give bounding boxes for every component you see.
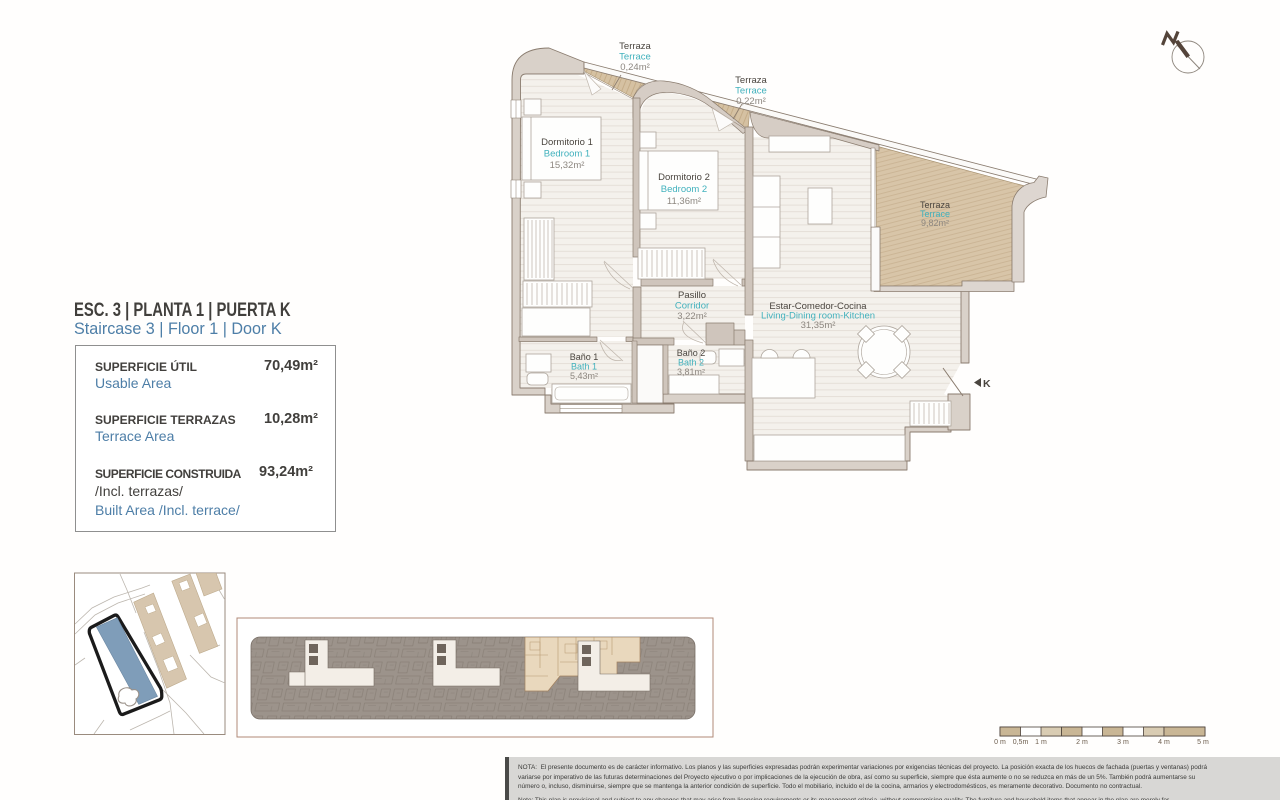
svg-text:3 m: 3 m (1117, 739, 1129, 746)
svg-text:4 m: 4 m (1158, 739, 1170, 746)
svg-text:0,22m²: 0,22m² (736, 96, 766, 107)
svg-text:Pasillo: Pasillo (678, 290, 706, 301)
svg-text:Bedroom 1: Bedroom 1 (544, 149, 590, 160)
svg-text:Terrace: Terrace (619, 52, 651, 63)
svg-text:9,82m²: 9,82m² (921, 218, 949, 228)
svg-text:3,81m²: 3,81m² (677, 367, 705, 377)
svg-text:Bedroom 2: Bedroom 2 (661, 184, 707, 195)
svg-text:K: K (983, 378, 991, 390)
svg-text:31,35m²: 31,35m² (801, 320, 836, 331)
svg-text:0,5m: 0,5m (1013, 739, 1029, 746)
svg-text:Bath 1: Bath 1 (571, 362, 597, 372)
svg-text:15,32m²: 15,32m² (550, 160, 585, 171)
svg-text:Terraza: Terraza (619, 41, 651, 52)
svg-text:Dormitorio 2: Dormitorio 2 (658, 172, 710, 183)
svg-text:Terraza: Terraza (735, 75, 767, 86)
svg-text:3,22m²: 3,22m² (677, 311, 707, 322)
svg-text:5 m: 5 m (1197, 739, 1209, 746)
svg-text:0 m: 0 m (994, 739, 1006, 746)
svg-text:2 m: 2 m (1076, 739, 1088, 746)
svg-text:5,43m²: 5,43m² (570, 371, 598, 381)
svg-text:Corridor: Corridor (675, 301, 709, 312)
svg-text:Bath 2: Bath 2 (678, 358, 704, 368)
svg-text:1 m: 1 m (1035, 739, 1047, 746)
svg-text:Baño 2: Baño 2 (677, 348, 706, 358)
svg-text:11,36m²: 11,36m² (667, 196, 701, 207)
svg-text:Dormitorio 1: Dormitorio 1 (541, 137, 593, 148)
svg-text:Baño 1: Baño 1 (570, 352, 599, 362)
svg-text:Terrace: Terrace (735, 86, 767, 97)
svg-text:0,24m²: 0,24m² (620, 62, 650, 73)
